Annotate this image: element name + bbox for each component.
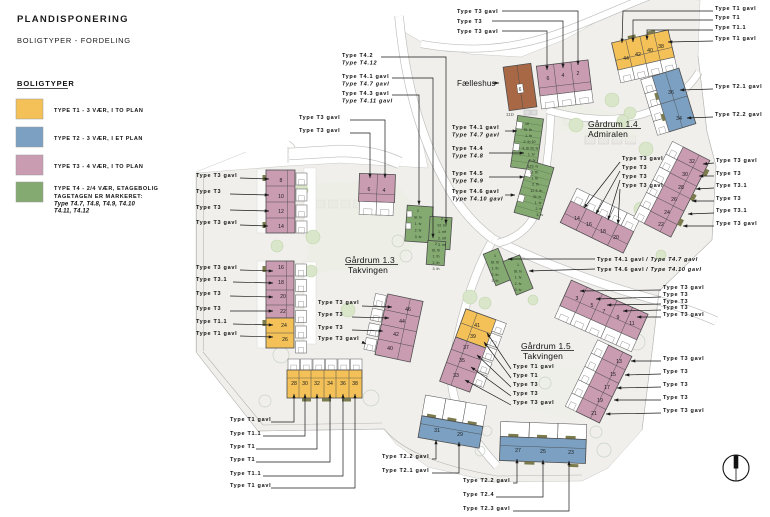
svg-text:8: 8 (280, 178, 283, 184)
svg-text:TYPE T4 - 2/4 VÆR, ETAGEBOLIG: TYPE T4 - 2/4 VÆR, ETAGEBOLIG (54, 186, 158, 192)
svg-text:7: 7 (603, 309, 606, 315)
svg-text:Type T4.12: Type T4.12 (342, 61, 377, 67)
svg-text:Type T3 gavl: Type T3 gavl (196, 220, 237, 226)
svg-text:3. mf: 3. mf (438, 243, 446, 247)
svg-text:24: 24 (281, 323, 287, 329)
svg-text:Type T1: Type T1 (230, 457, 255, 463)
svg-text:17: 17 (604, 385, 610, 391)
svg-text:22: 22 (658, 222, 664, 228)
svg-text:Type T3: Type T3 (457, 19, 482, 25)
svg-text:Type T4.1 gavl: Type T4.1 gavl (452, 125, 499, 131)
svg-text:St. tv: St. tv (414, 216, 422, 220)
svg-text:46: 46 (405, 307, 411, 313)
svg-text:36: 36 (340, 381, 346, 387)
svg-text:St. th: St. th (530, 171, 538, 175)
svg-text:30: 30 (302, 381, 308, 387)
svg-text:Type T3 gavl: Type T3 gavl (663, 285, 704, 291)
svg-text:Type T3 gavl: Type T3 gavl (622, 156, 663, 162)
svg-text:6: 6 (547, 76, 550, 82)
svg-text:Type T1 gavl: Type T1 gavl (715, 36, 756, 42)
svg-text:Type T3 gavl: Type T3 gavl (513, 400, 554, 406)
svg-text:37: 37 (463, 345, 469, 351)
svg-text:9: 9 (617, 315, 620, 321)
svg-text:Gårdrum 1.4: Gårdrum 1.4 (588, 119, 638, 129)
svg-text:3. tv: 3. tv (536, 213, 543, 217)
svg-text:Type T3: Type T3 (663, 382, 688, 388)
svg-text:14: 14 (574, 216, 580, 222)
svg-text:2: 2 (577, 71, 580, 77)
svg-text:11: 11 (629, 321, 634, 327)
svg-text:27: 27 (515, 448, 521, 454)
svg-text:2. tv: 2. tv (529, 158, 536, 162)
svg-text:24: 24 (664, 210, 670, 216)
svg-text:Type T3 gavl: Type T3 gavl (663, 408, 704, 414)
svg-text:44: 44 (399, 319, 405, 325)
svg-text:Type T3: Type T3 (622, 174, 647, 180)
svg-text:Type T3: Type T3 (318, 312, 343, 318)
svg-text:Gårdrum 1.3: Gårdrum 1.3 (345, 255, 395, 265)
svg-text:12 3. th: 12 3. th (530, 189, 542, 193)
svg-text:Type T1.1: Type T1.1 (230, 431, 261, 437)
svg-text:Type T3: Type T3 (196, 291, 221, 297)
svg-text:40: 40 (647, 48, 653, 54)
svg-text:Type T4.8: Type T4.8 (452, 154, 484, 160)
svg-text:Type T3: Type T3 (716, 171, 741, 177)
svg-text:14: 14 (278, 224, 284, 230)
svg-text:St. mf: St. mf (437, 224, 446, 228)
svg-text:29: 29 (457, 432, 463, 438)
svg-text:Type T3 gavl: Type T3 gavl (716, 221, 757, 227)
svg-text:2. tv: 2. tv (536, 207, 543, 211)
svg-text:30: 30 (682, 172, 688, 178)
svg-text:Type T4.1 gavl: Type T4.1 gavl (342, 74, 389, 80)
svg-text:2. tv: 2. tv (415, 229, 422, 233)
svg-text:2. mf: 2. mf (438, 237, 446, 241)
svg-text:Takvingen: Takvingen (523, 351, 563, 361)
svg-text:32: 32 (689, 159, 695, 165)
svg-text:Type T3: Type T3 (196, 189, 221, 195)
svg-text:10: 10 (525, 122, 529, 126)
svg-text:Type T1: Type T1 (715, 15, 740, 21)
svg-text:Type T1.1: Type T1.1 (715, 25, 746, 31)
svg-text:2. tv: 2. tv (515, 282, 522, 286)
svg-text:42: 42 (635, 52, 641, 58)
svg-text:1. tv: 1. tv (515, 276, 522, 280)
svg-text:Type T3 gavl: Type T3 gavl (318, 336, 359, 342)
svg-text:Type T3 gavl: Type T3 gavl (457, 29, 498, 35)
svg-text:5: 5 (591, 303, 594, 309)
svg-text:Type T2.2 gavl: Type T2.2 gavl (382, 454, 429, 460)
svg-text:Type T3: Type T3 (622, 165, 647, 171)
svg-text:40: 40 (387, 346, 393, 352)
svg-text:1. tv: 1. tv (535, 201, 542, 205)
svg-text:23: 23 (568, 450, 574, 456)
svg-text:St. tv: St. tv (533, 195, 541, 199)
svg-text:3. tv: 3. tv (515, 288, 522, 292)
svg-text:20: 20 (613, 235, 619, 241)
svg-text:28: 28 (678, 185, 684, 191)
svg-text:38: 38 (658, 44, 664, 50)
svg-text:1. th: 1. th (433, 255, 440, 259)
svg-text:St. tv: St. tv (514, 269, 522, 273)
svg-text:TYPE T1 - 3 VÆR, I TO PLAN: TYPE T1 - 3 VÆR, I TO PLAN (54, 108, 143, 114)
svg-text:Type T2.4: Type T2.4 (463, 492, 495, 498)
svg-text:1. tv: 1. tv (415, 222, 422, 226)
svg-text:Type T3: Type T3 (196, 306, 221, 312)
svg-text:Type T3: Type T3 (663, 292, 688, 298)
svg-text:Type T3: Type T3 (716, 196, 741, 202)
svg-text:Type T4.6 gavl: Type T4.6 gavl (452, 189, 499, 195)
svg-text:Type T4.4: Type T4.4 (452, 146, 484, 152)
svg-text:Type T2.2 gavl: Type T2.2 gavl (463, 478, 510, 484)
svg-text:Type T4.9: Type T4.9 (452, 179, 484, 185)
svg-text:41: 41 (474, 323, 480, 329)
svg-text:2: 2 (441, 217, 443, 221)
svg-text:Type T4.2: Type T4.2 (342, 53, 373, 59)
svg-text:BOLIGTYPER: BOLIGTYPER (17, 79, 75, 88)
svg-text:Type T3: Type T3 (318, 325, 343, 331)
svg-text:Type T3 gavl: Type T3 gavl (299, 128, 340, 134)
svg-text:Type T3 gavl: Type T3 gavl (196, 173, 237, 179)
svg-text:Type T1 gavl: Type T1 gavl (230, 483, 271, 489)
svg-text:Type T4.1 gavl: Type T4.1 gavl (597, 257, 644, 263)
svg-text:Type T3 gavl: Type T3 gavl (318, 300, 359, 306)
svg-text:4: 4 (562, 73, 565, 79)
svg-text:20: 20 (280, 294, 286, 300)
svg-text:Type T3.1: Type T3.1 (716, 183, 747, 189)
svg-text:1. tv: 1. tv (528, 152, 535, 156)
svg-text:2. th: 2. th (492, 273, 499, 277)
svg-text:32: 32 (314, 381, 320, 387)
svg-text:St. th: St. th (524, 128, 532, 132)
svg-text:Type T3 gavl: Type T3 gavl (299, 115, 340, 121)
svg-text:Admiralen: Admiralen (588, 129, 628, 139)
svg-text:Type T3 gavl: Type T3 gavl (622, 183, 663, 189)
svg-text:Type T4.7 gavl: Type T4.7 gavl (452, 133, 500, 139)
svg-text:3. th: 3. th (492, 279, 499, 283)
svg-text:TAGETAGEN ER MARKERET:: TAGETAGEN ER MARKERET: (54, 194, 143, 200)
svg-text:Type T4.10 gavl: Type T4.10 gavl (452, 197, 503, 203)
svg-text:35: 35 (459, 358, 465, 364)
svg-text:13: 13 (616, 359, 622, 365)
svg-text:Type T3: Type T3 (663, 305, 688, 311)
svg-text:2. th: 2. th (433, 261, 440, 265)
svg-text:Gårdrum 1.5: Gårdrum 1.5 (521, 341, 571, 351)
svg-text:Fælleshus: Fælleshus (457, 79, 496, 88)
svg-text:10: 10 (278, 194, 284, 200)
svg-text:Type T4.5: Type T4.5 (452, 171, 483, 177)
svg-text:Type T3 gavl: Type T3 gavl (663, 312, 704, 318)
svg-text:1: 1 (517, 263, 519, 267)
svg-text:39: 39 (470, 334, 476, 340)
svg-text:/ Type T4.10 gavl: / Type T4.10 gavl (645, 267, 702, 273)
svg-text:44: 44 (623, 56, 629, 62)
svg-text:Type T3: Type T3 (196, 205, 221, 211)
svg-text:Type T3: Type T3 (513, 391, 538, 397)
svg-text:1: 1 (494, 254, 496, 258)
svg-text:21: 21 (591, 411, 597, 417)
svg-text:26: 26 (282, 337, 288, 343)
svg-text:Type T1: Type T1 (230, 444, 255, 450)
svg-text:/ Type T4.7 gavl: / Type T4.7 gavl (645, 257, 698, 263)
svg-text:Type T4.6 gavl: Type T4.6 gavl (597, 267, 644, 273)
svg-text:3. tv: 3. tv (415, 235, 422, 239)
svg-text:Type T3.1: Type T3.1 (196, 277, 227, 283)
svg-text:TYPE T2 - 3 VÆR, I ET PLAN: TYPE T2 - 3 VÆR, I ET PLAN (54, 136, 143, 142)
svg-text:19: 19 (597, 398, 603, 404)
svg-text:Type T2.2 gavl: Type T2.2 gavl (715, 112, 762, 118)
svg-text:18: 18 (278, 280, 284, 286)
svg-text:6: 6 (519, 87, 522, 93)
svg-text:Type T4.7 gavl: Type T4.7 gavl (342, 82, 390, 88)
svg-text:16: 16 (278, 265, 284, 271)
svg-text:15: 15 (610, 372, 616, 378)
svg-text:1. mf: 1. mf (438, 230, 446, 234)
svg-text:2. th 10: 2. th 10 (524, 140, 536, 144)
svg-text:Type T1 gavl: Type T1 gavl (715, 6, 756, 12)
svg-text:Type T2.3 gavl: Type T2.3 gavl (463, 506, 510, 512)
svg-text:4: 4 (383, 188, 386, 194)
svg-text:22: 22 (280, 309, 286, 315)
svg-text:26: 26 (671, 197, 677, 203)
svg-text:2: 2 (417, 209, 419, 213)
svg-text:6: 6 (368, 187, 371, 193)
svg-text:1. th: 1. th (531, 177, 538, 181)
svg-text:Type T2.1 gavl: Type T2.1 gavl (382, 468, 429, 474)
svg-text:Type T3 gavl: Type T3 gavl (196, 265, 237, 271)
svg-text:Type T1.1: Type T1.1 (196, 319, 227, 325)
svg-text:25: 25 (540, 449, 546, 455)
svg-text:38: 38 (352, 381, 358, 387)
svg-text:Type T3: Type T3 (513, 382, 538, 388)
svg-text:Type T1 gavl: Type T1 gavl (196, 331, 237, 337)
svg-text:PLANDISPONERING: PLANDISPONERING (17, 14, 129, 25)
svg-text:Type T3 gavl: Type T3 gavl (663, 356, 704, 362)
svg-text:Type T1 gavl: Type T1 gavl (513, 364, 554, 370)
svg-text:1. th: 1. th (525, 134, 532, 138)
svg-text:Type T2.1 gavl: Type T2.1 gavl (715, 84, 762, 90)
svg-text:3. th: 3. th (433, 267, 440, 271)
svg-text:42: 42 (393, 332, 399, 338)
svg-text:St. th: St. th (491, 260, 499, 264)
svg-text:TYPE T3 - 4 VÆR, I TO PLAN: TYPE T3 - 4 VÆR, I TO PLAN (54, 164, 143, 170)
svg-text:28: 28 (291, 381, 297, 387)
svg-text:3: 3 (576, 296, 579, 302)
svg-text:St. th: St. th (432, 248, 440, 252)
svg-text:T4.11, T4.12: T4.11, T4.12 (54, 209, 90, 215)
svg-text:2. th: 2. th (532, 183, 539, 187)
svg-text:Type T3: Type T3 (663, 369, 688, 375)
svg-text:36: 36 (668, 90, 674, 96)
svg-text:33: 33 (453, 373, 459, 379)
svg-text:1. th: 1. th (492, 267, 499, 271)
svg-text:Takvingen: Takvingen (348, 265, 388, 275)
svg-text:Type T4.3 gavl: Type T4.3 gavl (342, 91, 389, 97)
svg-text:34: 34 (676, 116, 682, 122)
svg-text:2: 2 (435, 242, 437, 246)
svg-text:16: 16 (586, 222, 592, 228)
svg-text:Type T4.11 gavl: Type T4.11 gavl (342, 99, 393, 105)
svg-text:Type T1.1: Type T1.1 (230, 471, 261, 477)
svg-text:Type T1: Type T1 (513, 373, 538, 379)
svg-text:18: 18 (600, 229, 606, 235)
svg-text:BOLIGTYPER - FORDELING: BOLIGTYPER - FORDELING (17, 36, 131, 45)
svg-text:31: 31 (434, 428, 440, 434)
svg-text:Type T3 gavl: Type T3 gavl (716, 158, 757, 164)
svg-text:Type T3: Type T3 (663, 395, 688, 401)
svg-text:Type T3.1: Type T3.1 (716, 208, 747, 214)
svg-text:11D: 11D (506, 112, 515, 117)
svg-text:Type T4.7, T4.8, T4.9, T4.10: Type T4.7, T4.8, T4.9, T4.10 (54, 202, 136, 208)
svg-text:12: 12 (278, 209, 284, 215)
svg-text:Type T3 gavl: Type T3 gavl (457, 9, 498, 15)
svg-text:3. th St. tv: 3. th St. tv (522, 146, 538, 150)
svg-text:Type T1 gavl: Type T1 gavl (230, 417, 271, 423)
svg-text:34: 34 (327, 381, 333, 387)
svg-text:123. tv: 123. tv (528, 164, 539, 168)
